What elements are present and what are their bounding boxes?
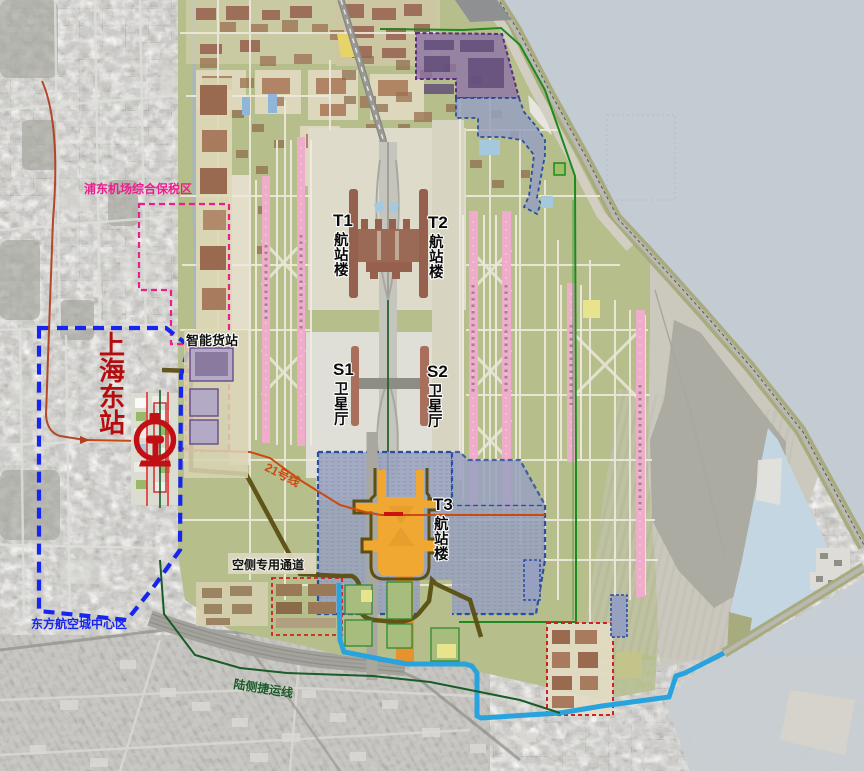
- svg-text:S1: S1: [333, 360, 354, 379]
- svg-text:卫星厅: 卫星厅: [428, 383, 443, 430]
- svg-text:航站楼: 航站楼: [334, 231, 349, 279]
- svg-text:航站楼: 航站楼: [434, 515, 449, 563]
- svg-text:浦东机场综合保税区: 浦东机场综合保税区: [84, 181, 192, 196]
- svg-text:空侧专用通道: 空侧专用通道: [232, 557, 304, 572]
- svg-text:智能货站: 智能货站: [186, 333, 238, 348]
- svg-text:T3: T3: [433, 495, 453, 514]
- svg-text:东方航空城中心区: 东方航空城中心区: [31, 616, 127, 631]
- svg-text:S2: S2: [427, 362, 448, 381]
- svg-text:航站楼: 航站楼: [429, 233, 444, 281]
- svg-text:T2: T2: [428, 213, 448, 232]
- svg-text:T1: T1: [333, 211, 353, 230]
- svg-text:上海东站: 上海东站: [99, 330, 125, 438]
- svg-text:卫星厅: 卫星厅: [334, 381, 349, 428]
